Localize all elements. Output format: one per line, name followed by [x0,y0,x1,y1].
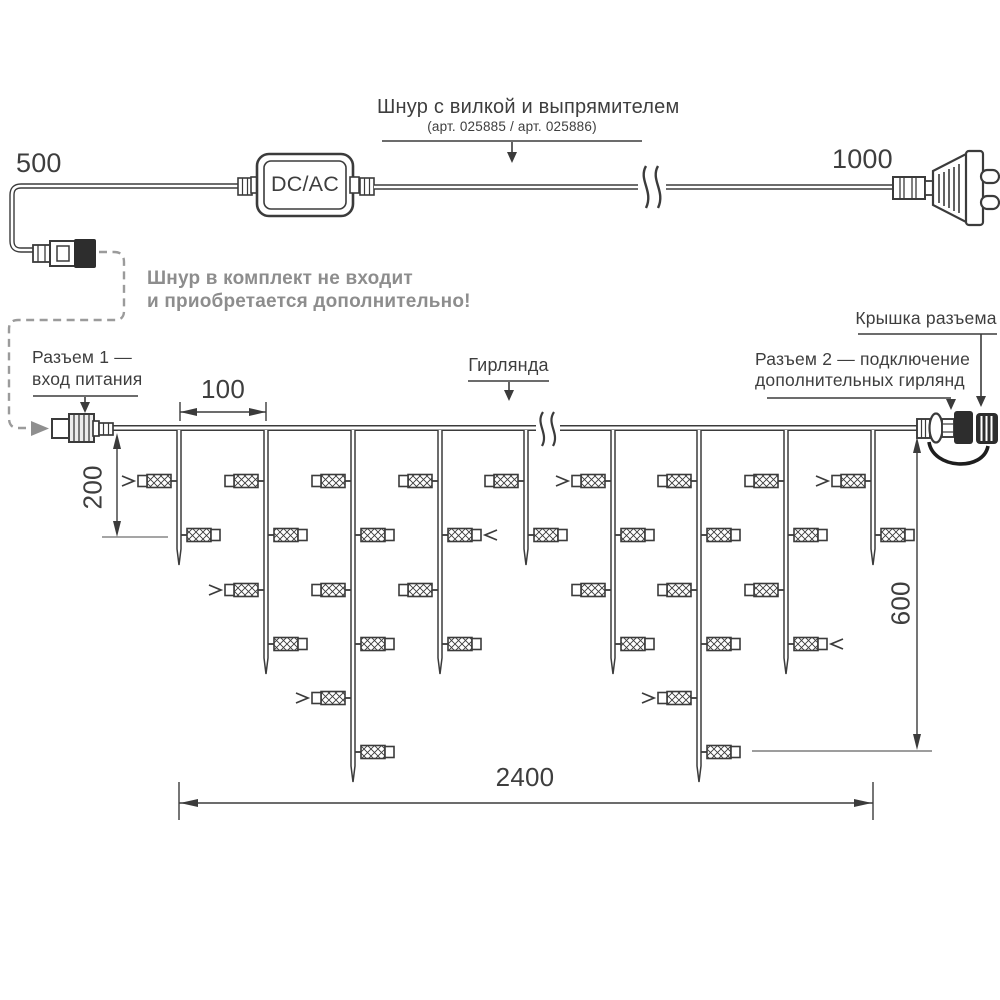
flashing-bulb-arrow-icon [485,530,497,540]
dim-600-label: 600 [886,570,917,636]
bulb-icon [707,638,731,651]
bulb-socket-icon [472,639,481,650]
bulb-socket-icon [472,530,481,541]
dim-100-lines [180,402,266,421]
bulb-icon [321,692,345,705]
bulb-icon [581,475,605,488]
bulb-icon [794,529,818,542]
cord-break-gap [638,166,666,210]
connector1-label-line2: вход питания [32,369,142,390]
plug-icon [893,151,999,225]
bulb-icon [754,584,778,597]
bulb-socket-icon [905,530,914,541]
flashing-bulb-arrow-icon [209,585,221,595]
flashing-bulb-arrow-icon [556,476,568,486]
bulb-socket-icon [818,530,827,541]
bulb-socket-icon [312,585,321,596]
bulb-socket-icon [558,530,567,541]
cord-title: Шнур с вилкой и выпрямителем [377,96,647,120]
bulb-icon [667,475,691,488]
flashing-bulb-arrow-icon [816,476,828,486]
connector1-icon [52,414,113,442]
bulb-icon [707,529,731,542]
dashed-connection-path [9,252,124,428]
bulb-socket-icon [731,530,740,541]
bulb-socket-icon [658,585,667,596]
connector2-label-line2: дополнительных гирлянд [755,370,955,391]
bulb-socket-icon [138,476,147,487]
bulb-icon [448,638,472,651]
bulb-icon [794,638,818,651]
bulb-icon [361,638,385,651]
bulb-socket-icon [312,476,321,487]
bulb-icon [534,529,558,542]
flashing-bulb-arrow-icon [122,476,134,486]
dcac-label: DC/AC [262,172,348,197]
connector-cap-icon [976,413,998,444]
bulb-socket-icon [658,693,667,704]
bulb-icon [147,475,171,488]
flashing-bulb-arrow-icon [296,693,308,703]
bulb-icon [361,746,385,759]
bulb-socket-icon [298,530,307,541]
bulb-socket-icon [385,639,394,650]
bulb-socket-icon [645,530,654,541]
garland-label: Гирлянда [466,355,551,376]
bulb-socket-icon [225,476,234,487]
bulb-icon [494,475,518,488]
bulb-icon [667,692,691,705]
bulb-icon [881,529,905,542]
bulb-icon [234,475,258,488]
dashed-path-arrowhead [31,421,49,436]
bulb-icon [841,475,865,488]
dim-200-label: 200 [78,454,109,520]
bulb-icon [361,529,385,542]
bulb-socket-icon [731,639,740,650]
bulb-icon [187,529,211,542]
bulb-socket-icon [385,747,394,758]
bulb-socket-icon [658,476,667,487]
bulb-icon [621,529,645,542]
bulb-socket-icon [399,476,408,487]
cap-tether [929,442,988,464]
bulb-icon [274,529,298,542]
bulb-socket-icon [572,585,581,596]
bulb-socket-icon [832,476,841,487]
bulb-socket-icon [745,476,754,487]
bulb-icon [274,638,298,651]
bulb-socket-icon [211,530,220,541]
connector2-label-line1: Разъем 2 — подключение [755,349,955,370]
cord-subtitle: (арт. 025885 / арт. 025886) [377,119,647,135]
flashing-bulb-arrow-icon [642,693,654,703]
bulb-icon [408,584,432,597]
bulb-icon [581,584,605,597]
bulb-socket-icon [645,639,654,650]
bulb-socket-icon [485,476,494,487]
bulb-socket-icon [745,585,754,596]
bulb-icon [621,638,645,651]
icicle-drops [122,430,914,782]
flashing-bulb-arrow-icon [831,639,843,649]
bulb-icon [707,746,731,759]
dim-500-label: 500 [16,148,62,180]
diagram-canvas: 500 1000 Шнур с вилкой и выпрямителем (а… [0,0,1000,1000]
connector1-label-line1: Разъем 1 — [32,347,132,368]
cap-label: Крышка разъема [855,308,997,329]
bulb-socket-icon [399,585,408,596]
dim-1000-label: 1000 [832,144,893,176]
bulb-socket-icon [731,747,740,758]
bulb-icon [667,584,691,597]
bulb-icon [321,584,345,597]
note-line1: Шнур в комплект не входит [147,268,413,290]
bulb-socket-icon [572,476,581,487]
bulb-icon [448,529,472,542]
dim-100-label: 100 [190,374,256,405]
bulb-socket-icon [225,585,234,596]
cord-output-connector-icon [33,239,96,268]
bulb-icon [754,475,778,488]
bulb-socket-icon [312,693,321,704]
bulb-socket-icon [385,530,394,541]
note-line2: и приобретается дополнительно! [147,291,471,313]
bulb-socket-icon [818,639,827,650]
bulb-icon [408,475,432,488]
bulb-icon [234,584,258,597]
dim-2400-label: 2400 [483,762,567,793]
bulb-socket-icon [298,639,307,650]
garland-drawing [52,411,998,782]
bulb-icon [321,475,345,488]
